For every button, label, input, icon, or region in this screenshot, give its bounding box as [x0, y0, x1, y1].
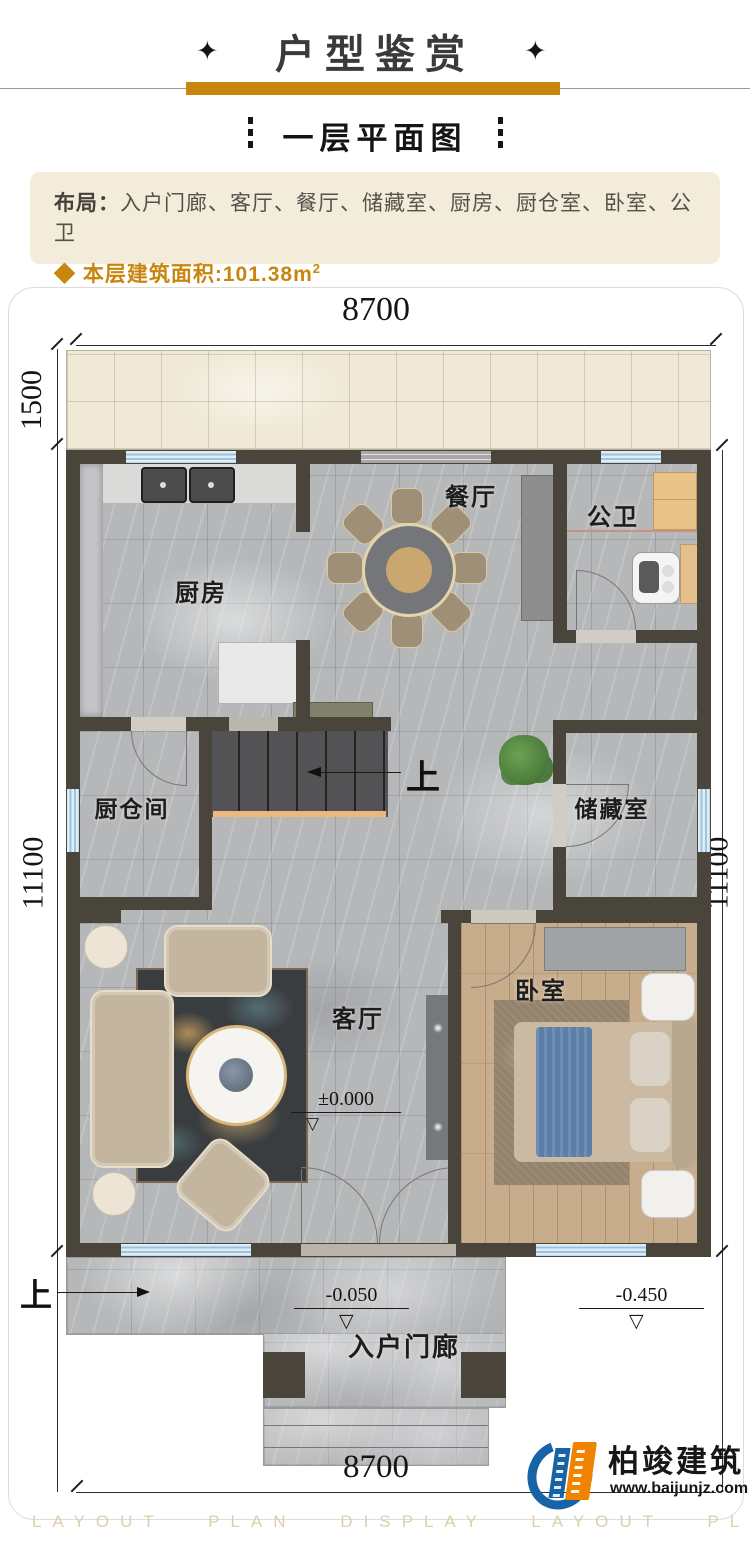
- kitchen-door-sill: [229, 717, 278, 731]
- wall-stairs-north: [278, 717, 391, 731]
- window-bedroom: [536, 1244, 646, 1256]
- room-label-pantry: 厨仓间: [77, 792, 187, 822]
- coffee-table: [186, 1025, 287, 1126]
- dim-terrace-depth: 1500: [9, 354, 55, 446]
- pantry-door-leaf: [186, 731, 187, 786]
- dining-table: [362, 523, 456, 617]
- page-title: 户型鉴赏: [0, 22, 750, 80]
- wall-bathroom-south: [553, 630, 576, 643]
- wall-mid: [186, 717, 229, 731]
- bed-blanket: [536, 1027, 592, 1157]
- window-living: [121, 1244, 251, 1256]
- dining-chair: [327, 552, 363, 584]
- bedroom-door-leaf: [471, 923, 536, 924]
- dining-chair: [391, 612, 423, 648]
- wall-living-north-stub: [80, 910, 121, 923]
- dim-tick: [71, 1480, 84, 1493]
- dim-tick: [710, 333, 723, 346]
- area-text: 本层建筑面积:101.38m: [83, 263, 313, 286]
- wall-pantry-south: [80, 897, 199, 910]
- kitchen-sink: [141, 467, 187, 503]
- layout-label: 布局：: [54, 192, 120, 215]
- wall-mid: [80, 717, 131, 731]
- layout-value: 入户门廊、客厅、餐厅、储藏室、厨房、厨仓室、卧室、公卫: [54, 192, 692, 245]
- porch-slab-upper: [66, 1257, 506, 1335]
- porch-direction-arrow: [137, 1287, 150, 1297]
- sink-drain-icon: [208, 482, 214, 488]
- wall-storage-south: [553, 897, 711, 910]
- bedroom-door-sill: [471, 910, 536, 923]
- elevation-triangle-icon: ▽: [306, 1114, 319, 1134]
- dim-top-line: [76, 345, 716, 346]
- pillow: [630, 1032, 670, 1086]
- kitchen-appliance: [218, 642, 298, 704]
- baijun-logo: 柏竣建筑 www.baijunjz.com: [528, 1436, 750, 1524]
- sofa: [90, 990, 174, 1168]
- sink-drain-icon: [160, 482, 166, 488]
- layout-line: 布局：入户门廊、客厅、餐厅、储藏室、厨房、厨仓室、卧室、公卫: [54, 187, 696, 247]
- wall-storage-north: [553, 720, 711, 733]
- elevation-yard: -0.450: [579, 1284, 704, 1309]
- staircase: [211, 731, 388, 817]
- porch-direction-line: [57, 1292, 139, 1293]
- toilet-bowl: [662, 581, 674, 593]
- stairs-up-label: 上: [401, 750, 445, 798]
- porch-up-label: 上: [15, 1270, 57, 1316]
- room-label-bathroom: 公卫: [563, 499, 663, 529]
- bed: [514, 1022, 696, 1162]
- area-line: ◆ 本层建筑面积:101.38m2: [54, 258, 696, 288]
- stair-nosing-strip: [213, 811, 386, 817]
- room-label-kitchen: 厨房: [151, 575, 251, 605]
- floor-subtitle: 一层平面图: [283, 113, 468, 158]
- pillow: [630, 1098, 670, 1152]
- subtitle-row: 一层平面图: [0, 112, 750, 158]
- dim-bottom: 8700: [316, 1448, 436, 1486]
- wall-living-bedroom: [448, 923, 461, 1243]
- sofa: [164, 925, 272, 997]
- toilet-bowl: [662, 565, 674, 577]
- room-label-dining: 餐厅: [421, 479, 521, 509]
- entry-door-leaf: [301, 1169, 302, 1244]
- storage-door-leaf: [566, 784, 629, 785]
- toilet-tank: [639, 561, 659, 593]
- kitchen-sink: [189, 467, 235, 503]
- subtitle-right-dash-icon: [498, 117, 503, 153]
- layout-info-box: 布局：入户门廊、客厅、餐厅、储藏室、厨房、厨仓室、卧室、公卫 ◆ 本层建筑面积:…: [30, 172, 720, 264]
- area-sup: 2: [313, 261, 321, 276]
- elevation-triangle-icon: ▽: [629, 1310, 644, 1332]
- header-gold-bar: [186, 82, 560, 95]
- stairs-direction-line: [319, 772, 401, 773]
- bathroom-door-sill: [576, 630, 636, 643]
- headboard: [672, 1016, 696, 1168]
- kitchen-side-counter: [79, 463, 103, 717]
- bathroom-door-leaf: [576, 570, 577, 630]
- dim-left-line: [57, 349, 58, 1492]
- logo-website: www.baijunjz.com: [610, 1480, 748, 1498]
- wall-kitchen-dining-upper: [296, 464, 310, 532]
- room-label-bedroom: 卧室: [491, 973, 591, 1003]
- wardrobe: [544, 927, 686, 971]
- step-line: [264, 1425, 488, 1426]
- room-label-porch: 入户门廊: [329, 1328, 479, 1362]
- dim-tick: [70, 333, 83, 346]
- pantry-door-sill: [131, 717, 186, 731]
- side-table: [92, 1172, 136, 1216]
- house-body: 上: [66, 450, 711, 1257]
- wall-dining-bathroom: [553, 464, 567, 630]
- wall-west: [66, 450, 80, 1257]
- room-label-living: 客厅: [308, 1001, 408, 1031]
- dim-top: 8700: [316, 290, 436, 330]
- sliding-door-terrace: [361, 451, 491, 463]
- flyer-page: ✦ 户型鉴赏 ✦ 一层平面图 布局：入户门廊、客厅、餐厅、储藏室、厨房、厨仓室、…: [0, 0, 750, 1546]
- right-ornament-icon: ✦: [524, 36, 547, 67]
- nightstand: [641, 973, 695, 1021]
- toilet: [632, 552, 680, 604]
- wall-bedroom-north: [536, 910, 697, 923]
- wall-storage-west: [553, 733, 566, 784]
- porch-column: [263, 1352, 305, 1398]
- elevation-living: ±0.000: [291, 1088, 401, 1113]
- dining-chair: [391, 488, 423, 524]
- dining-table-set: [342, 503, 470, 631]
- elevation-triangle-icon: ▽: [339, 1310, 354, 1332]
- potted-plant: [499, 735, 549, 785]
- side-table: [84, 925, 128, 969]
- lazy-susan: [386, 547, 432, 593]
- elevation-porch: -0.050: [294, 1284, 409, 1309]
- dim-left-height: 11100: [11, 798, 55, 948]
- nightstand: [641, 1170, 695, 1218]
- window-bathroom: [601, 451, 661, 463]
- dining-tall-cabinet: [521, 475, 555, 621]
- stairs-direction-arrow: [307, 767, 321, 777]
- wall-bathroom-south: [636, 630, 711, 643]
- window-storage: [698, 789, 710, 852]
- dim-right-line: [722, 450, 723, 1492]
- floor-plan-card: 8700 1500 11100 11100: [8, 287, 744, 1520]
- wall-east: [697, 450, 711, 1257]
- logo-brand-name: 柏竣建筑: [608, 1436, 744, 1481]
- window-kitchen: [126, 451, 236, 463]
- subtitle-left-dash-icon: [248, 117, 253, 153]
- tv-cabinet: [426, 995, 450, 1160]
- wall-pantry-east: [199, 731, 212, 910]
- entry-door-sill: [301, 1244, 456, 1256]
- room-label-storage: 储藏室: [557, 792, 667, 822]
- terrace-floor: [66, 350, 711, 450]
- table-decor: [219, 1058, 253, 1092]
- diamond-bullet-icon: ◆: [54, 263, 76, 286]
- wall-bedroom-north: [441, 910, 471, 923]
- dining-chair: [451, 552, 487, 584]
